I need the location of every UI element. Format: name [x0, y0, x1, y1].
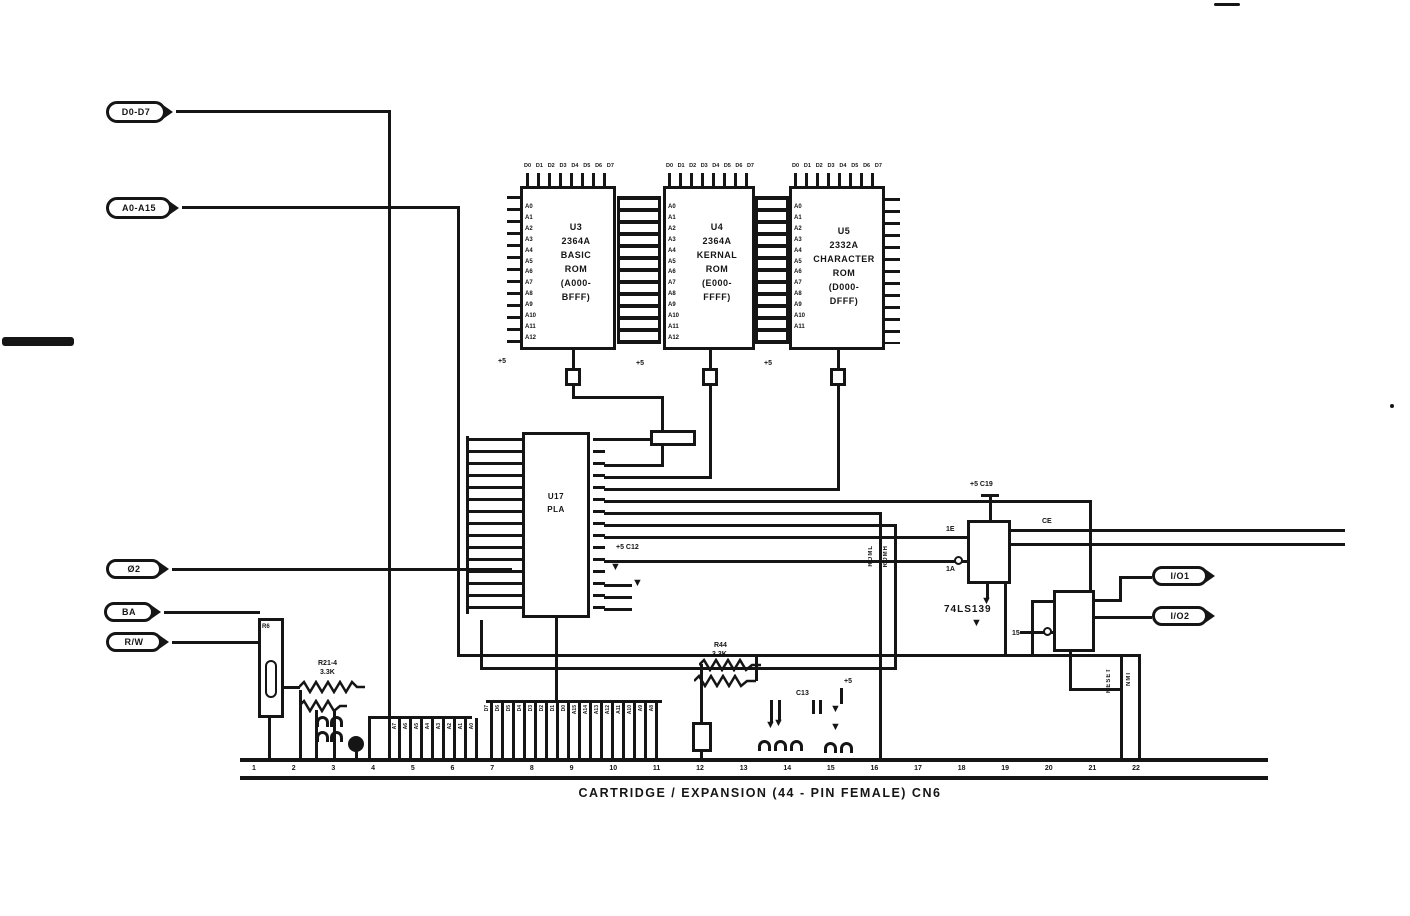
- wire: [172, 641, 260, 644]
- wire: [1011, 529, 1345, 532]
- ground-arrow-icon: ▼: [610, 562, 621, 573]
- pin-strip: [885, 198, 900, 344]
- pin-label: A0: [469, 723, 475, 729]
- wire: [453, 718, 456, 760]
- coil-bump: [824, 742, 837, 753]
- chip-label-line: ROM: [706, 264, 729, 274]
- pin-label: D5: [506, 705, 512, 711]
- wire: [164, 611, 260, 614]
- wire: [644, 700, 647, 760]
- pin-number: 15: [1012, 630, 1020, 638]
- pin-label: A6: [794, 267, 805, 278]
- inverter-bubble: [954, 556, 963, 565]
- pin-label: D4: [712, 163, 719, 169]
- chip-label-line: KERNAL: [697, 250, 738, 260]
- pin-number: 13: [740, 765, 748, 772]
- wire: [1069, 688, 1122, 691]
- wire: [755, 657, 758, 681]
- wire: [578, 700, 581, 760]
- pin-label-row: D0D1D2D3D4D5D6D7: [792, 163, 882, 169]
- pin-label: A0: [668, 202, 679, 213]
- pin-label-col: A0A1A2A3A4A5A6A7A8A9A10A11A12: [668, 202, 679, 344]
- pin-label: D5: [851, 163, 858, 169]
- connector-rw: R/W: [106, 632, 162, 652]
- bus-ladder: [755, 196, 789, 344]
- pin-number: 10: [609, 765, 617, 772]
- pin-label: A10: [668, 311, 679, 322]
- pin-label: A7: [794, 278, 805, 289]
- connector-phi2: Ø2: [106, 559, 162, 579]
- wire: [409, 718, 412, 760]
- chip-label-line: U3: [570, 222, 583, 232]
- value-label-r21: 3.3K: [320, 669, 335, 677]
- wire: [604, 476, 712, 479]
- wire: [604, 512, 882, 515]
- signal-label-romh: ROMH: [883, 545, 889, 567]
- pin-label: A2: [668, 224, 679, 235]
- pin-number: 20: [1045, 765, 1053, 772]
- coil-bump: [790, 740, 803, 751]
- wire: [604, 596, 632, 599]
- pin-label: A7: [668, 278, 679, 289]
- pullup-box: [702, 368, 718, 386]
- coil-bump: [840, 742, 853, 753]
- pin-label: A10: [525, 311, 536, 322]
- pin-label: D3: [560, 163, 567, 169]
- wire: [176, 110, 389, 113]
- pin-label: D5: [724, 163, 731, 169]
- pin-label: A3: [436, 723, 442, 729]
- wire: [981, 494, 999, 497]
- ref-label-r44: R44: [714, 642, 727, 650]
- wire: [572, 396, 664, 399]
- chip-label-line: 2364A: [561, 236, 590, 246]
- pin-label: A0: [525, 202, 536, 213]
- pin-label: D6: [863, 163, 870, 169]
- pin-label: A2: [794, 224, 805, 235]
- connector-io2: I/O2: [1152, 606, 1208, 626]
- pin-number: 21: [1088, 765, 1096, 772]
- wire: [604, 608, 632, 611]
- pin-label: D2: [548, 163, 555, 169]
- component-slot: [265, 660, 277, 698]
- pin-number: 19: [1001, 765, 1009, 772]
- pin-label: D0: [792, 163, 799, 169]
- connector-label: R/W: [125, 637, 144, 647]
- pin-label: A5: [794, 257, 805, 268]
- pin-label: D1: [536, 163, 543, 169]
- wire: [604, 584, 632, 587]
- pin-label: A2: [447, 723, 453, 729]
- pin-number: 12: [696, 765, 704, 772]
- pin-number: 14: [783, 765, 791, 772]
- chip-label-line: (D000-: [829, 282, 860, 292]
- wire: [989, 494, 992, 520]
- pin-label-col: A0A1A2A3A4A5A6A7A8A9A10A11A12: [525, 202, 536, 344]
- chip-u15-label: 74LS139: [944, 604, 992, 615]
- pin-label: D6: [735, 163, 742, 169]
- wire: [567, 700, 570, 760]
- pin-label: A3: [794, 235, 805, 246]
- wire: [1095, 616, 1152, 619]
- pin-label: A13: [594, 705, 600, 714]
- wire: [490, 700, 493, 760]
- pin-label: A5: [414, 723, 420, 729]
- wire: [840, 688, 843, 704]
- pin-label: D0: [666, 163, 673, 169]
- pin-label: D7: [875, 163, 882, 169]
- resistor-zigzag: [299, 699, 347, 713]
- wire: [837, 350, 840, 368]
- connector-label: BA: [122, 607, 136, 617]
- pin-label: A12: [668, 333, 679, 344]
- pin-label: A1: [794, 213, 805, 224]
- wire: [1069, 652, 1072, 690]
- wire: [622, 700, 625, 760]
- pin-number: 18: [958, 765, 966, 772]
- pin-label: D2: [689, 163, 696, 169]
- wire: [398, 718, 401, 760]
- pin-label: D2: [539, 705, 545, 711]
- wire: [512, 700, 515, 760]
- small-box: [650, 430, 696, 446]
- pullup-box: [565, 368, 581, 386]
- resistor-zigzag: [299, 680, 365, 694]
- wire: [709, 386, 712, 478]
- pin-number: 1: [252, 765, 256, 772]
- pin-label: A9: [525, 300, 536, 311]
- resistor-zigzag: [694, 674, 756, 688]
- pin-label: A3: [525, 235, 536, 246]
- pin-label: D2: [816, 163, 823, 169]
- pullup-label: +5: [764, 360, 772, 368]
- wire: [894, 524, 897, 670]
- pin-label: A11: [794, 322, 805, 333]
- ground-arrow-icon: ▼: [830, 722, 841, 733]
- wire: [1031, 600, 1034, 656]
- chip-label-line: U4: [711, 222, 724, 232]
- pin-label: A5: [525, 257, 536, 268]
- wire: [700, 664, 703, 722]
- connector-io1: I/O1: [1152, 566, 1208, 586]
- pin-label: A1: [668, 213, 679, 224]
- pin-label: A4: [525, 246, 536, 257]
- pin-label: CE: [1042, 518, 1052, 526]
- chip-label-line: BFFF): [562, 292, 591, 302]
- pin-label: A8: [525, 289, 536, 300]
- wire: [457, 654, 1140, 657]
- cartridge-connector-bar: 12345678910111213141516171819202122: [240, 758, 1268, 780]
- coil-bump: [774, 740, 787, 751]
- bus-ladder: [617, 196, 661, 344]
- pin-strip: [509, 438, 522, 612]
- pin-number: 4: [371, 765, 375, 772]
- coil-bump: [758, 740, 771, 751]
- pin-label: A7: [525, 278, 536, 289]
- pin-label: A4: [425, 723, 431, 729]
- ground-arrow-icon: ▼: [971, 618, 982, 629]
- chip-label-line: BASIC: [561, 250, 592, 260]
- pin-label: A8: [794, 289, 805, 300]
- chip-u17-label: U17PLA: [524, 492, 588, 514]
- pin-number: 15: [827, 765, 835, 772]
- pin-label: A4: [794, 246, 805, 257]
- pin-label: A9: [794, 300, 805, 311]
- chip-label-line: (E000-: [702, 278, 732, 288]
- wire: [457, 206, 460, 656]
- pin-label: D6: [595, 163, 602, 169]
- inverter-bubble: [1043, 627, 1052, 636]
- pin-number: 16: [871, 765, 879, 772]
- wire: [604, 536, 967, 539]
- wire: [1095, 599, 1122, 602]
- chip-label-line: U17: [548, 492, 564, 501]
- pin-label: A3: [668, 235, 679, 246]
- pin-label: A6: [403, 723, 409, 729]
- chip-label-line: PLA: [547, 505, 565, 514]
- wire: [633, 700, 636, 760]
- chip-label-line: U5: [838, 226, 851, 236]
- wire: [655, 700, 658, 760]
- wire: [466, 436, 469, 614]
- pin-number: 22: [1132, 765, 1140, 772]
- pullup-label: +5: [498, 358, 506, 366]
- wire: [431, 718, 434, 760]
- chip-label-line: ROM: [833, 268, 856, 278]
- signal-label-roml: ROML: [868, 545, 874, 567]
- wire: [604, 464, 664, 467]
- pin-label: A14: [583, 705, 589, 714]
- chip-label-line: 2364A: [702, 236, 731, 246]
- pin-number: 17: [914, 765, 922, 772]
- pin-number: 3: [331, 765, 335, 772]
- pin-label: A2: [525, 224, 536, 235]
- wire: [600, 700, 603, 760]
- wire: [837, 386, 840, 490]
- schematic-page: D0-D7 A0-A15 Ø2 BA R/W D0D1D2D3D4D5D6D7 …: [0, 0, 1410, 916]
- wire: [523, 700, 526, 760]
- pin-label: A9: [638, 705, 644, 711]
- pin-label: D6: [495, 705, 501, 711]
- chip-label-line: (A000-: [561, 278, 592, 288]
- connector-label: A0-A15: [122, 203, 156, 213]
- wire: [1004, 584, 1007, 656]
- wire: [572, 350, 575, 368]
- wire: [611, 700, 614, 760]
- cluster-wire: A8: [651, 700, 662, 760]
- pin-label: A6: [525, 267, 536, 278]
- pin-label: D0: [561, 705, 567, 711]
- scan-smudge: [1390, 404, 1394, 408]
- capacitor-plate: [819, 700, 822, 714]
- connector-addr-bus: A0-A15: [106, 197, 172, 219]
- pin-label: A4: [668, 246, 679, 257]
- wire: [604, 524, 897, 527]
- coil-bump: [330, 731, 343, 742]
- pin-number: 9: [570, 765, 574, 772]
- pin-label: D7: [747, 163, 754, 169]
- connector-label: I/O1: [1170, 571, 1189, 581]
- pin-label: A15: [572, 705, 578, 714]
- cluster-wire: A0: [471, 718, 482, 760]
- pin-label: D4: [839, 163, 846, 169]
- pin-label: D3: [701, 163, 708, 169]
- wire: [1011, 543, 1345, 546]
- pin-label: A7: [392, 723, 398, 729]
- wire: [420, 718, 423, 760]
- pin-label: A1: [525, 213, 536, 224]
- power-label: +5 C19: [970, 481, 993, 489]
- wire: [589, 700, 592, 760]
- pin-label: D7: [607, 163, 614, 169]
- wire: [1119, 576, 1152, 579]
- ground-arrow-icon: ▼: [632, 578, 643, 589]
- pin-label: A1: [458, 723, 464, 729]
- pin-label: D1: [804, 163, 811, 169]
- pin-number: 2: [292, 765, 296, 772]
- pin-label: D4: [517, 705, 523, 711]
- wire: [709, 350, 712, 368]
- ref-label-r21: R21-4: [318, 660, 337, 668]
- wire: [172, 568, 512, 571]
- cap-label: +5 C12: [616, 544, 639, 552]
- signal-label-nmi: NMI: [1126, 672, 1132, 686]
- signal-label-reset: RESET: [1106, 668, 1112, 693]
- pin-label: A8: [668, 289, 679, 300]
- connector-label: Ø2: [127, 564, 140, 574]
- pin-label: A5: [668, 257, 679, 268]
- pin-number: 7: [490, 765, 494, 772]
- scan-smudge: [2, 337, 74, 346]
- pin-label: D4: [571, 163, 578, 169]
- pin-strip: [526, 173, 612, 186]
- power-label: +5: [844, 678, 852, 686]
- wire: [1119, 576, 1122, 602]
- chip-decoder-half-2: [1053, 590, 1095, 652]
- wire: [1031, 600, 1053, 603]
- pin-label: A0: [794, 202, 805, 213]
- chip-u5-label: U52332ACHARACTERROM(D000-DFFF): [806, 226, 882, 306]
- wire: [268, 716, 271, 760]
- pin-label: A6: [668, 267, 679, 278]
- pin-label: A10: [627, 705, 633, 714]
- cap-label-c13: C13: [796, 690, 809, 698]
- pin-label: D5: [583, 163, 590, 169]
- capacitor-plate: [812, 700, 815, 714]
- pin-label: D3: [528, 705, 534, 711]
- wire: [480, 620, 483, 670]
- pin-strip: [794, 173, 880, 186]
- wire: [604, 438, 650, 441]
- wire: [501, 700, 504, 760]
- pin-label: A11: [525, 322, 536, 333]
- resistor-zigzag: [699, 658, 761, 672]
- pin-strip: [668, 173, 752, 186]
- wire: [879, 512, 882, 762]
- pullup-label: +5: [636, 360, 644, 368]
- pin-label-row: D0D1D2D3D4D5D6D7: [666, 163, 754, 169]
- chip-label-line: DFFF): [830, 296, 859, 306]
- pin-fan: [468, 438, 509, 612]
- wire: [556, 700, 559, 760]
- ground-arrow-icon: ▼: [830, 704, 841, 715]
- connector-caption: CARTRIDGE / EXPANSION (44 - PIN FEMALE) …: [500, 786, 1020, 800]
- connector-ba: BA: [104, 602, 154, 622]
- wire: [604, 500, 1092, 503]
- pin-number: 8: [530, 765, 534, 772]
- pin-label: D1: [550, 705, 556, 711]
- pin-label: 1E: [946, 526, 955, 534]
- wire: [534, 700, 537, 760]
- chip-u15-decoder: [967, 520, 1011, 584]
- pin-label: D0: [524, 163, 531, 169]
- wire: [333, 710, 336, 760]
- pin-strip: [507, 196, 520, 344]
- pin-number: 6: [451, 765, 455, 772]
- wire: [182, 206, 460, 209]
- connector-data-bus: D0-D7: [106, 101, 166, 123]
- wire-cluster-a: A7A6A5A4A3A2A1A0: [394, 718, 482, 760]
- pin-label: 1A: [946, 566, 955, 574]
- pin-label: A11: [668, 322, 679, 333]
- wire: [442, 718, 445, 760]
- wire: [315, 710, 318, 760]
- pin-label-row: D0D1D2D3D4D5D6D7: [524, 163, 614, 169]
- wire: [545, 700, 548, 760]
- pin-label: A12: [525, 333, 536, 344]
- chip-label-line: ROM: [565, 264, 588, 274]
- connector-label: D0-D7: [122, 107, 151, 117]
- pin-label-col: A0A1A2A3A4A5A6A7A8A9A10A11: [794, 202, 805, 333]
- pin-label: D3: [828, 163, 835, 169]
- chip-u3-label: U32364ABASICROM(A000-BFFF): [540, 222, 612, 302]
- wire: [1138, 654, 1141, 760]
- chip-label-line: FFFF): [703, 292, 731, 302]
- pin-number: 11: [653, 765, 660, 772]
- pin-label: A9: [668, 300, 679, 311]
- component-box: [692, 722, 712, 752]
- pin-label: D7: [484, 705, 490, 711]
- wire: [299, 690, 302, 760]
- chip-u4-label: U42364AKERNALROM(E000-FFFF): [681, 222, 753, 302]
- pin-label: D1: [678, 163, 685, 169]
- chip-label-line: CHARACTER: [813, 254, 875, 264]
- coil-bump: [330, 716, 343, 727]
- wire-cluster-b: D7D6D5D4D3D2D1D0A15A14A13A12A11A10A9A8: [486, 700, 662, 760]
- wire: [284, 686, 300, 689]
- ref-label-r6: R6: [262, 624, 270, 631]
- pin-label: A12: [605, 705, 611, 714]
- pullup-box: [830, 368, 846, 386]
- wire: [604, 488, 840, 491]
- wire: [464, 718, 467, 760]
- pin-label: A11: [616, 705, 622, 714]
- wire: [475, 718, 478, 760]
- pin-label: A8: [649, 705, 655, 711]
- arrow-down-icon: ▼: [773, 718, 784, 729]
- scan-smudge: [1214, 3, 1240, 6]
- wire: [1120, 654, 1123, 760]
- wire: [555, 618, 558, 702]
- connector-pin-numbers: 12345678910111213141516171819202122: [252, 765, 1140, 772]
- connector-label: I/O2: [1170, 611, 1189, 621]
- pin-number: 5: [411, 765, 415, 772]
- wire: [368, 716, 371, 760]
- wire: [480, 667, 897, 670]
- chip-u17-pla: [522, 432, 590, 618]
- pin-label: A10: [794, 311, 805, 322]
- chip-label-line: 2332A: [829, 240, 858, 250]
